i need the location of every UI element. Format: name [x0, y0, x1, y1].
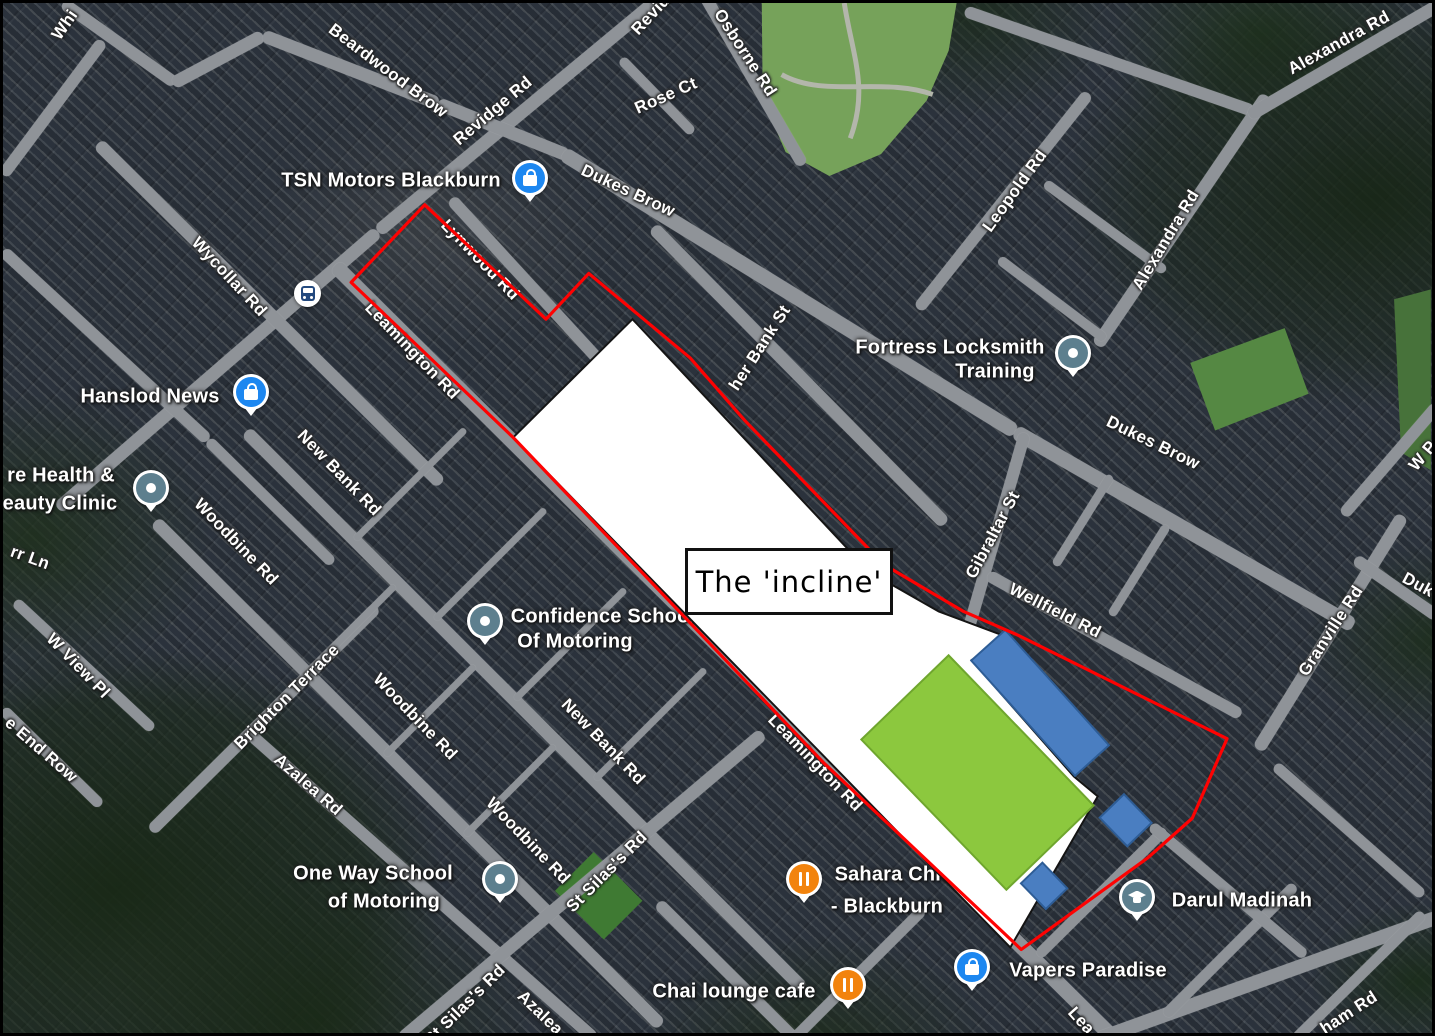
annotation-shapes-layer	[3, 3, 1432, 1033]
blue-overlay-rect	[1100, 794, 1152, 846]
map-screenshot-frame: WhiBeardwood BrowRevidge RdRevidOsborne …	[0, 0, 1435, 1036]
incline-label-text: The 'incline'	[696, 565, 883, 599]
incline-label-box: The 'incline'	[685, 548, 893, 615]
